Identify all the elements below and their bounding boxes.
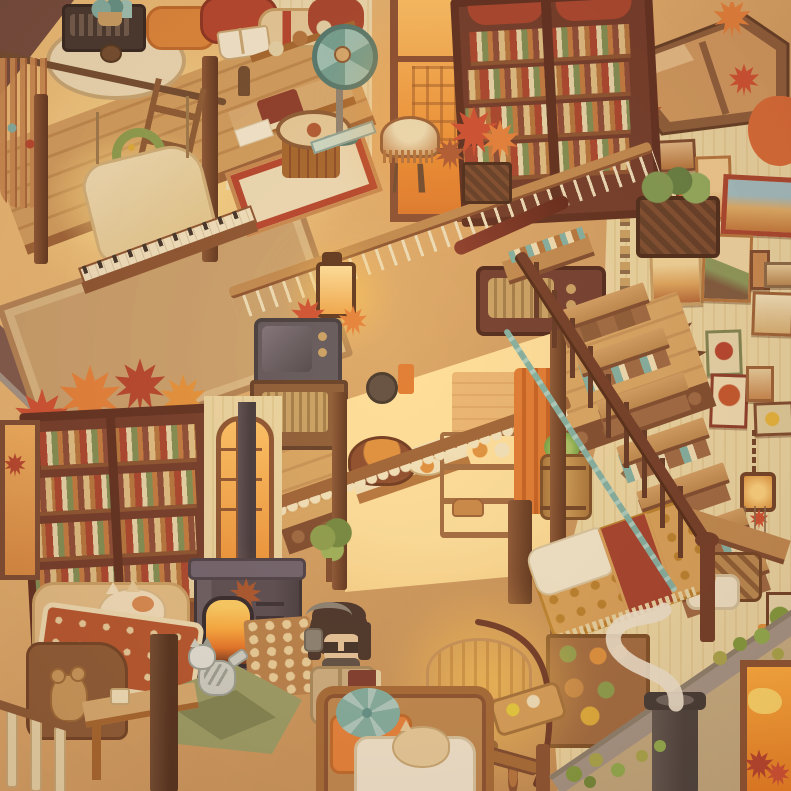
pet-bed-cat-ear [400,720,412,731]
kitchen-hanging-pan [366,372,398,404]
exterior-ivy-right [700,618,790,688]
balustrade-newel [536,744,550,791]
table-leg [92,722,101,780]
corner-red-maples [742,740,791,790]
character-hair-side [358,622,371,660]
corner-dark-post [150,634,178,791]
basket-plant [640,162,710,204]
pixel-art-room-scene [0,0,791,791]
left-bookshelf-row [39,424,197,470]
wall-chime-chain [752,430,756,474]
swing-rope [186,96,189,158]
kitten-ear [202,637,212,646]
maple-planter-pot [462,162,512,204]
doorway-leaf-glow [748,688,782,714]
mug [100,44,122,63]
kitchen-towel [398,364,414,394]
kitten [184,642,242,698]
cat-ear [106,582,120,594]
newel-cap [695,532,719,548]
table-cup [110,688,130,705]
headphones-band [306,602,352,630]
tv-screen [262,326,312,372]
small-tree-foliage [306,516,354,564]
corner-baluster [6,706,18,788]
character-glasses [324,642,358,653]
cat-ear [126,580,140,592]
teddy-ear [50,668,66,684]
chimney-smoke [560,600,720,720]
cat-rust-patch [132,596,154,612]
picture-frame-sunflowers [753,401,791,436]
teddy-ear [70,666,86,682]
lantern-top [322,252,342,262]
tv-knob [318,332,327,341]
corner-glass-panel [0,420,40,580]
cushion-button [362,708,372,718]
desk-bottle [238,66,250,96]
corner-glass-leaf [2,452,28,478]
picture-frame-desert-poster [720,174,791,238]
succulent-pot [98,12,122,26]
corner-baluster [30,716,42,791]
bed-headboard [508,500,532,604]
fringe-lamp-fringe [383,150,433,163]
kitten-ear [190,638,200,647]
picture-frame [751,291,791,336]
tv-knob [318,348,327,357]
loft-post-left [34,94,48,264]
picture-frame [764,262,791,288]
corner-baluster [54,726,66,791]
headphones-cup [304,628,323,652]
fringe-lamp-legs [393,164,426,193]
picture-frame [746,366,774,402]
maple-planter-leaves [432,136,468,172]
vintage-radio-knob [566,284,576,294]
swing-rope [96,112,99,164]
kitten-head [188,644,216,670]
basket-planter [636,196,720,258]
bread-loaf [452,498,484,517]
pet-bed-cat [392,726,450,768]
wreath-berry [128,144,135,151]
maple-planter-leaves [478,118,522,162]
exterior-ivy [560,716,700,791]
